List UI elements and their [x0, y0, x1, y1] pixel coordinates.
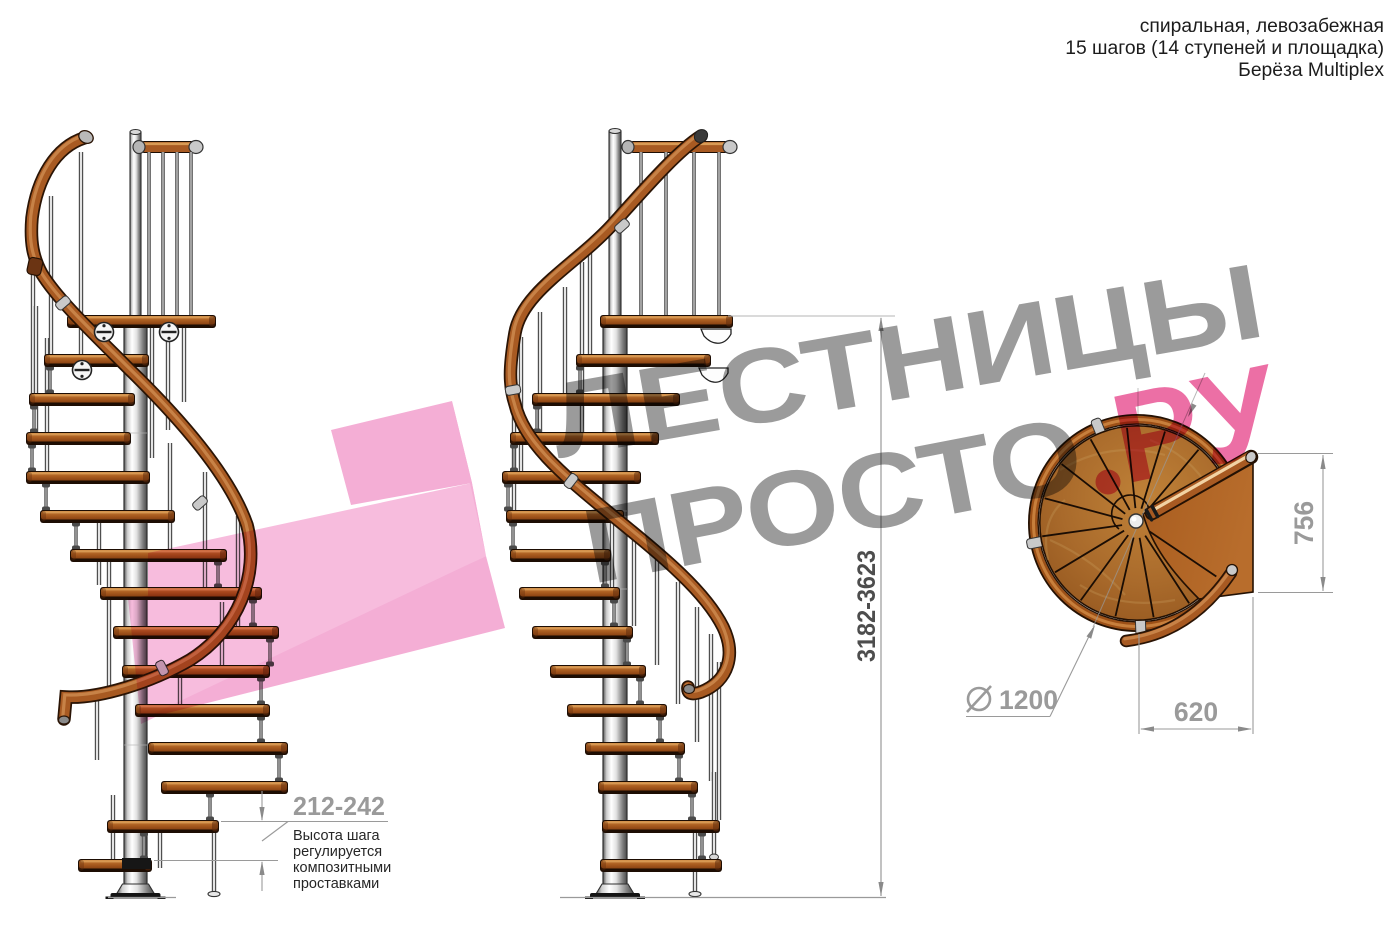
svg-text:620: 620: [1174, 697, 1218, 727]
svg-text:проставками: проставками: [293, 876, 379, 892]
svg-text:Высота шага: Высота шага: [293, 828, 380, 844]
svg-text:212-242: 212-242: [293, 791, 385, 821]
svg-text:регулируется: регулируется: [293, 844, 382, 860]
svg-text:1200: 1200: [999, 685, 1058, 715]
svg-text:спиральная, левозабежная: спиральная, левозабежная: [1140, 16, 1384, 37]
svg-text:15 шагов (14 ступеней и площад: 15 шагов (14 ступеней и площадка): [1065, 38, 1384, 59]
svg-text:756: 756: [1289, 501, 1319, 545]
svg-text:3182-3623: 3182-3623: [853, 550, 881, 662]
svg-text:Берёза Multiplex: Берёза Multiplex: [1238, 60, 1384, 81]
svg-text:композитными: композитными: [293, 860, 391, 876]
